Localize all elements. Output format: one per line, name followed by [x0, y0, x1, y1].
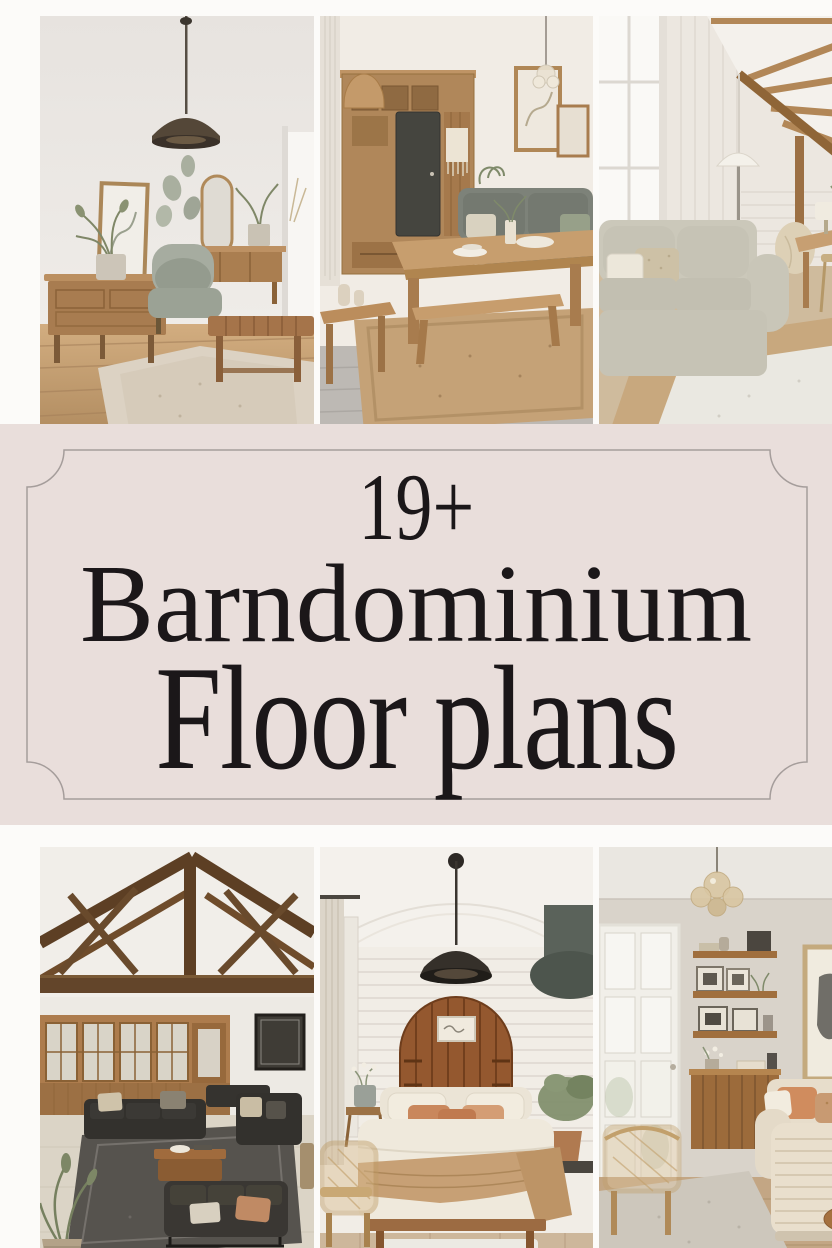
photo-bottom-middle: [320, 847, 593, 1248]
cozy-living-room-scene: [599, 847, 832, 1248]
photo-top-left: [40, 16, 314, 434]
count-text: 19+: [358, 464, 474, 551]
photo-bottom-right: [599, 847, 832, 1248]
dining-room-scene: [320, 16, 593, 434]
large-framed-art: [805, 947, 832, 1079]
great-room-scene: [40, 847, 314, 1248]
bedroom-scene: [320, 847, 593, 1248]
title-banner: 19+ Barndominium Floor plans: [0, 424, 832, 825]
photo-bottom-left: [40, 847, 314, 1248]
photo-top-middle: [320, 16, 593, 434]
coffee-table: [154, 1145, 226, 1181]
title-line-2: Floor plans: [155, 656, 677, 781]
pin-collage: 19+ Barndominium Floor plans: [0, 0, 832, 1248]
bedroom-rug: [378, 1239, 538, 1248]
banner-text: 19+ Barndominium Floor plans: [0, 424, 832, 825]
framed-art: [256, 1015, 304, 1069]
living-room-scene: [40, 16, 314, 434]
photo-top-right: [599, 16, 832, 434]
attic-lounge-scene: [599, 16, 832, 434]
curtain: [320, 895, 360, 1165]
